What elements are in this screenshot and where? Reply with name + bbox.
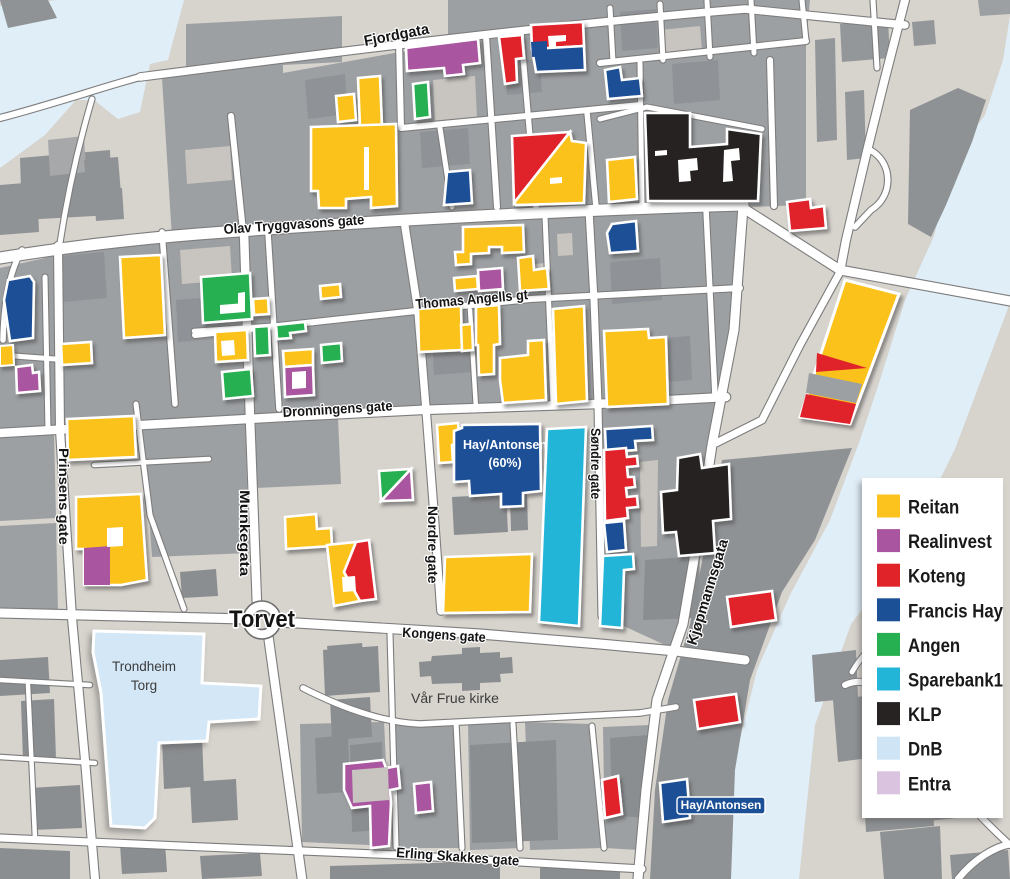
svg-text:Torvet: Torvet	[229, 606, 295, 633]
svg-text:Entra: Entra	[908, 773, 952, 794]
svg-text:Søndre gate: Søndre gate	[588, 428, 604, 499]
svg-text:KLP: KLP	[908, 704, 942, 725]
svg-text:Trondheim: Trondheim	[112, 659, 176, 674]
svg-text:Prinsens gate: Prinsens gate	[56, 448, 72, 545]
svg-text:Vår Frue kirke: Vår Frue kirke	[411, 690, 499, 706]
svg-text:DnB: DnB	[908, 739, 942, 760]
svg-text:Angen: Angen	[908, 635, 960, 656]
svg-text:Hay/Antonsen: Hay/Antonsen	[681, 798, 762, 812]
svg-text:Nordre gate: Nordre gate	[425, 506, 441, 583]
svg-text:Koteng: Koteng	[908, 566, 966, 587]
svg-text:Reitan: Reitan	[908, 496, 959, 517]
svg-text:(60%): (60%)	[488, 456, 521, 470]
svg-text:Francis Hay: Francis Hay	[908, 600, 1004, 621]
svg-text:Torg: Torg	[131, 678, 157, 693]
svg-text:Realinvest: Realinvest	[908, 531, 992, 552]
svg-text:Munkegata: Munkegata	[237, 490, 253, 577]
svg-text:Sparebank1: Sparebank1	[908, 669, 1003, 690]
svg-text:Hay/Antonsen: Hay/Antonsen	[463, 438, 547, 452]
